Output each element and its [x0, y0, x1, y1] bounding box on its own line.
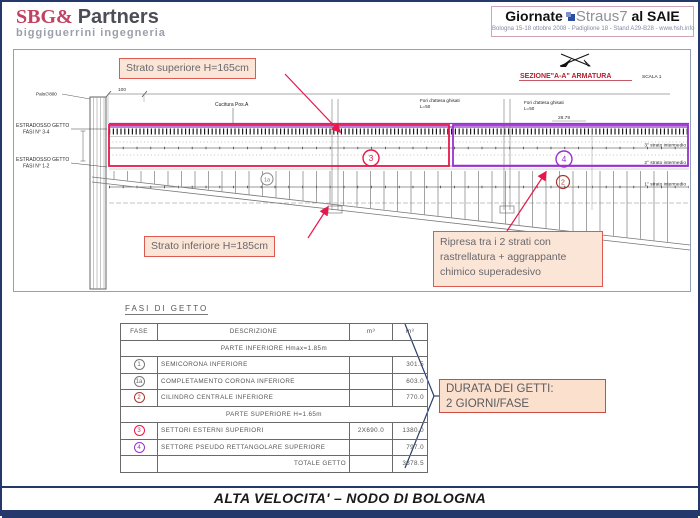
logo-subtitle: biggiguerrini ingegneria [16, 27, 166, 39]
slab-band [109, 124, 689, 204]
row-desc: SEMICORONA INFERIORE [158, 357, 350, 374]
estradosso-12-line2: FASI N° 1-2 [23, 164, 50, 170]
durata-line1: DURATA DEI GETTI: [446, 382, 599, 397]
fori-label-2-line1: Fori d'attesa ghisati [524, 100, 564, 105]
phase3-bubble-label: 3 [369, 153, 374, 163]
section-label: PARTE INFERIORE Hmax=1.85m [121, 340, 428, 357]
phase4-bubble-label: 4 [562, 154, 567, 164]
layer-labels: 3° strato intermedio 2° strato intermedi… [644, 143, 686, 188]
row-desc: SETTORE PSEUDO RETTANGOLARE SUPERIORE [158, 439, 350, 456]
fori-label-1-line1: Fori d'attesa ghisati [420, 98, 460, 103]
dim-100-label: 100 [118, 87, 126, 93]
fori-label-2-line2: L=50 [524, 106, 535, 111]
logo-partners-text: Partners [78, 6, 159, 28]
table-row: 2 CILINDRO CENTRALE INFERIORE 770.0 [121, 390, 428, 407]
table-total-row: TOTALE GETTO 3878.5 [121, 456, 428, 473]
row-m3a [350, 357, 393, 374]
estradosso-12-line1: ESTRADOSSO GETTO [16, 157, 69, 163]
header-m3b: m³ [393, 324, 428, 341]
row-desc: SETTORI ESTERNI SUPERIORI [158, 423, 350, 440]
table-row: PARTE SUPERIORE H=1.65m [121, 406, 428, 423]
crossed-axes-icon [560, 54, 590, 67]
row-m3a: 2X690.0 [350, 423, 393, 440]
row-desc: CILINDRO CENTRALE INFERIORE [158, 390, 350, 407]
table-row: 3 SETTORI ESTERNI SUPERIORI 2X690.0 1380… [121, 423, 428, 440]
header-m3a: m³ [350, 324, 393, 341]
cucitura-label: Cucitura Pos.A [215, 102, 249, 108]
slide: SBG&Partners biggiguerrini ingegneria Gi… [0, 0, 700, 516]
fase-bubble: 1 [134, 359, 145, 370]
joint-gridlines [328, 99, 592, 213]
fase-bubble: 2 [134, 392, 145, 403]
durata-line2: 2 GIORNI/FASE [446, 397, 599, 412]
pile-label: Palo∅800 [36, 92, 57, 97]
row-m3b: 1380.0 [393, 423, 428, 440]
straus7-cube-icon [566, 12, 575, 21]
fori-label-1-line2: L=50 [420, 104, 431, 109]
row-m3b: 301.5 [393, 357, 428, 374]
al-saie-text: al SAIE [631, 8, 679, 24]
row-m3a [350, 373, 393, 390]
section-title-group: SEZIONE"A-A" ARMATURA SCALA 1 [519, 54, 662, 81]
dim-2879-label: 28.79 [558, 115, 570, 121]
table-row: PARTE INFERIORE Hmax=1.85m [121, 340, 428, 357]
table-row: 1 SEMICORONA INFERIORE 301.5 [121, 357, 428, 374]
scale-label: SCALA 1 [642, 74, 662, 80]
table-row: 4 SETTORE PSEUDO RETTANGOLARE SUPERIORE … [121, 439, 428, 456]
row-m3a [350, 390, 393, 407]
layer-label-3: 3° strato intermedio [644, 143, 686, 149]
table-header-row: FASE DESCRIZIONE m³ m³ [121, 324, 428, 341]
logo-sbg-text: SBG& [16, 6, 73, 28]
giornate-straus7-logo: GiornateStraus7 al SAIE Bologna 15-18 ot… [491, 6, 694, 37]
fasi-getto-table: FASE DESCRIZIONE m³ m³ PARTE INFERIORE H… [120, 323, 428, 473]
header-descrizione: DESCRIZIONE [158, 324, 350, 341]
callout-strato-inferiore: Strato inferiore H=185cm [144, 236, 275, 257]
row-m3b: 797.0 [393, 439, 428, 456]
slide-title: ALTA VELOCITA' – NODO DI BOLOGNA [2, 488, 698, 509]
phase2-bubble-label: 2 [561, 180, 565, 187]
section-label: PARTE SUPERIORE H=1.65m [121, 406, 428, 423]
fase-bubble: 3 [134, 425, 145, 436]
section-title: SEZIONE"A-A" ARMATURA [520, 73, 611, 80]
row-m3b: 603.0 [393, 373, 428, 390]
callout-durata: DURATA DEI GETTI: 2 GIORNI/FASE [439, 379, 606, 413]
estradosso-34-line1: ESTRADOSSO GETTO [16, 123, 69, 129]
giornate-text: Giornate [505, 8, 563, 24]
row-m3b: 770.0 [393, 390, 428, 407]
table-title: FASI DI GETTO [125, 304, 208, 315]
callout-ripresa: Ripresa tra i 2 strati con rastrellatura… [433, 231, 603, 287]
top-dimension-line: 100 [106, 87, 670, 124]
header-fase: FASE [121, 324, 158, 341]
total-label: TOTALE GETTO [158, 456, 350, 473]
table-row: 1a COMPLETAMENTO CORONA INFERIORE 603.0 [121, 373, 428, 390]
straus7-text: Straus7 [576, 8, 628, 25]
pile: Palo∅800 [36, 92, 106, 290]
fase-bubble: 1a [134, 376, 145, 387]
small-annotations: Cucitura Pos.A Fori d'attesa ghisati L=5… [215, 98, 586, 123]
layer-label-1: 1° strato intermedio [644, 182, 686, 188]
footer-bar [2, 512, 698, 518]
fasi-di-getto-block: FASI DI GETTO FASE DESCRIZIONE m³ m³ PAR… [120, 298, 428, 473]
sbg-partners-logo: SBG&Partners biggiguerrini ingegneria [16, 7, 166, 39]
row-desc: COMPLETAMENTO CORONA INFERIORE [158, 373, 350, 390]
giornate-subtitle: Bologna 15-18 ottobre 2008 - Padiglione … [492, 25, 693, 33]
total-value: 3878.5 [393, 456, 428, 473]
fase-bubble: 4 [134, 442, 145, 453]
row-m3a [350, 439, 393, 456]
callout-strato-superiore: Strato superiore H=165cm [119, 58, 256, 79]
footer-title-band: ALTA VELOCITA' – NODO DI BOLOGNA [2, 486, 698, 512]
estradosso-34-line2: FASI N° 3-4 [23, 130, 50, 136]
phase1a-bubble-label: 1a [264, 178, 271, 184]
